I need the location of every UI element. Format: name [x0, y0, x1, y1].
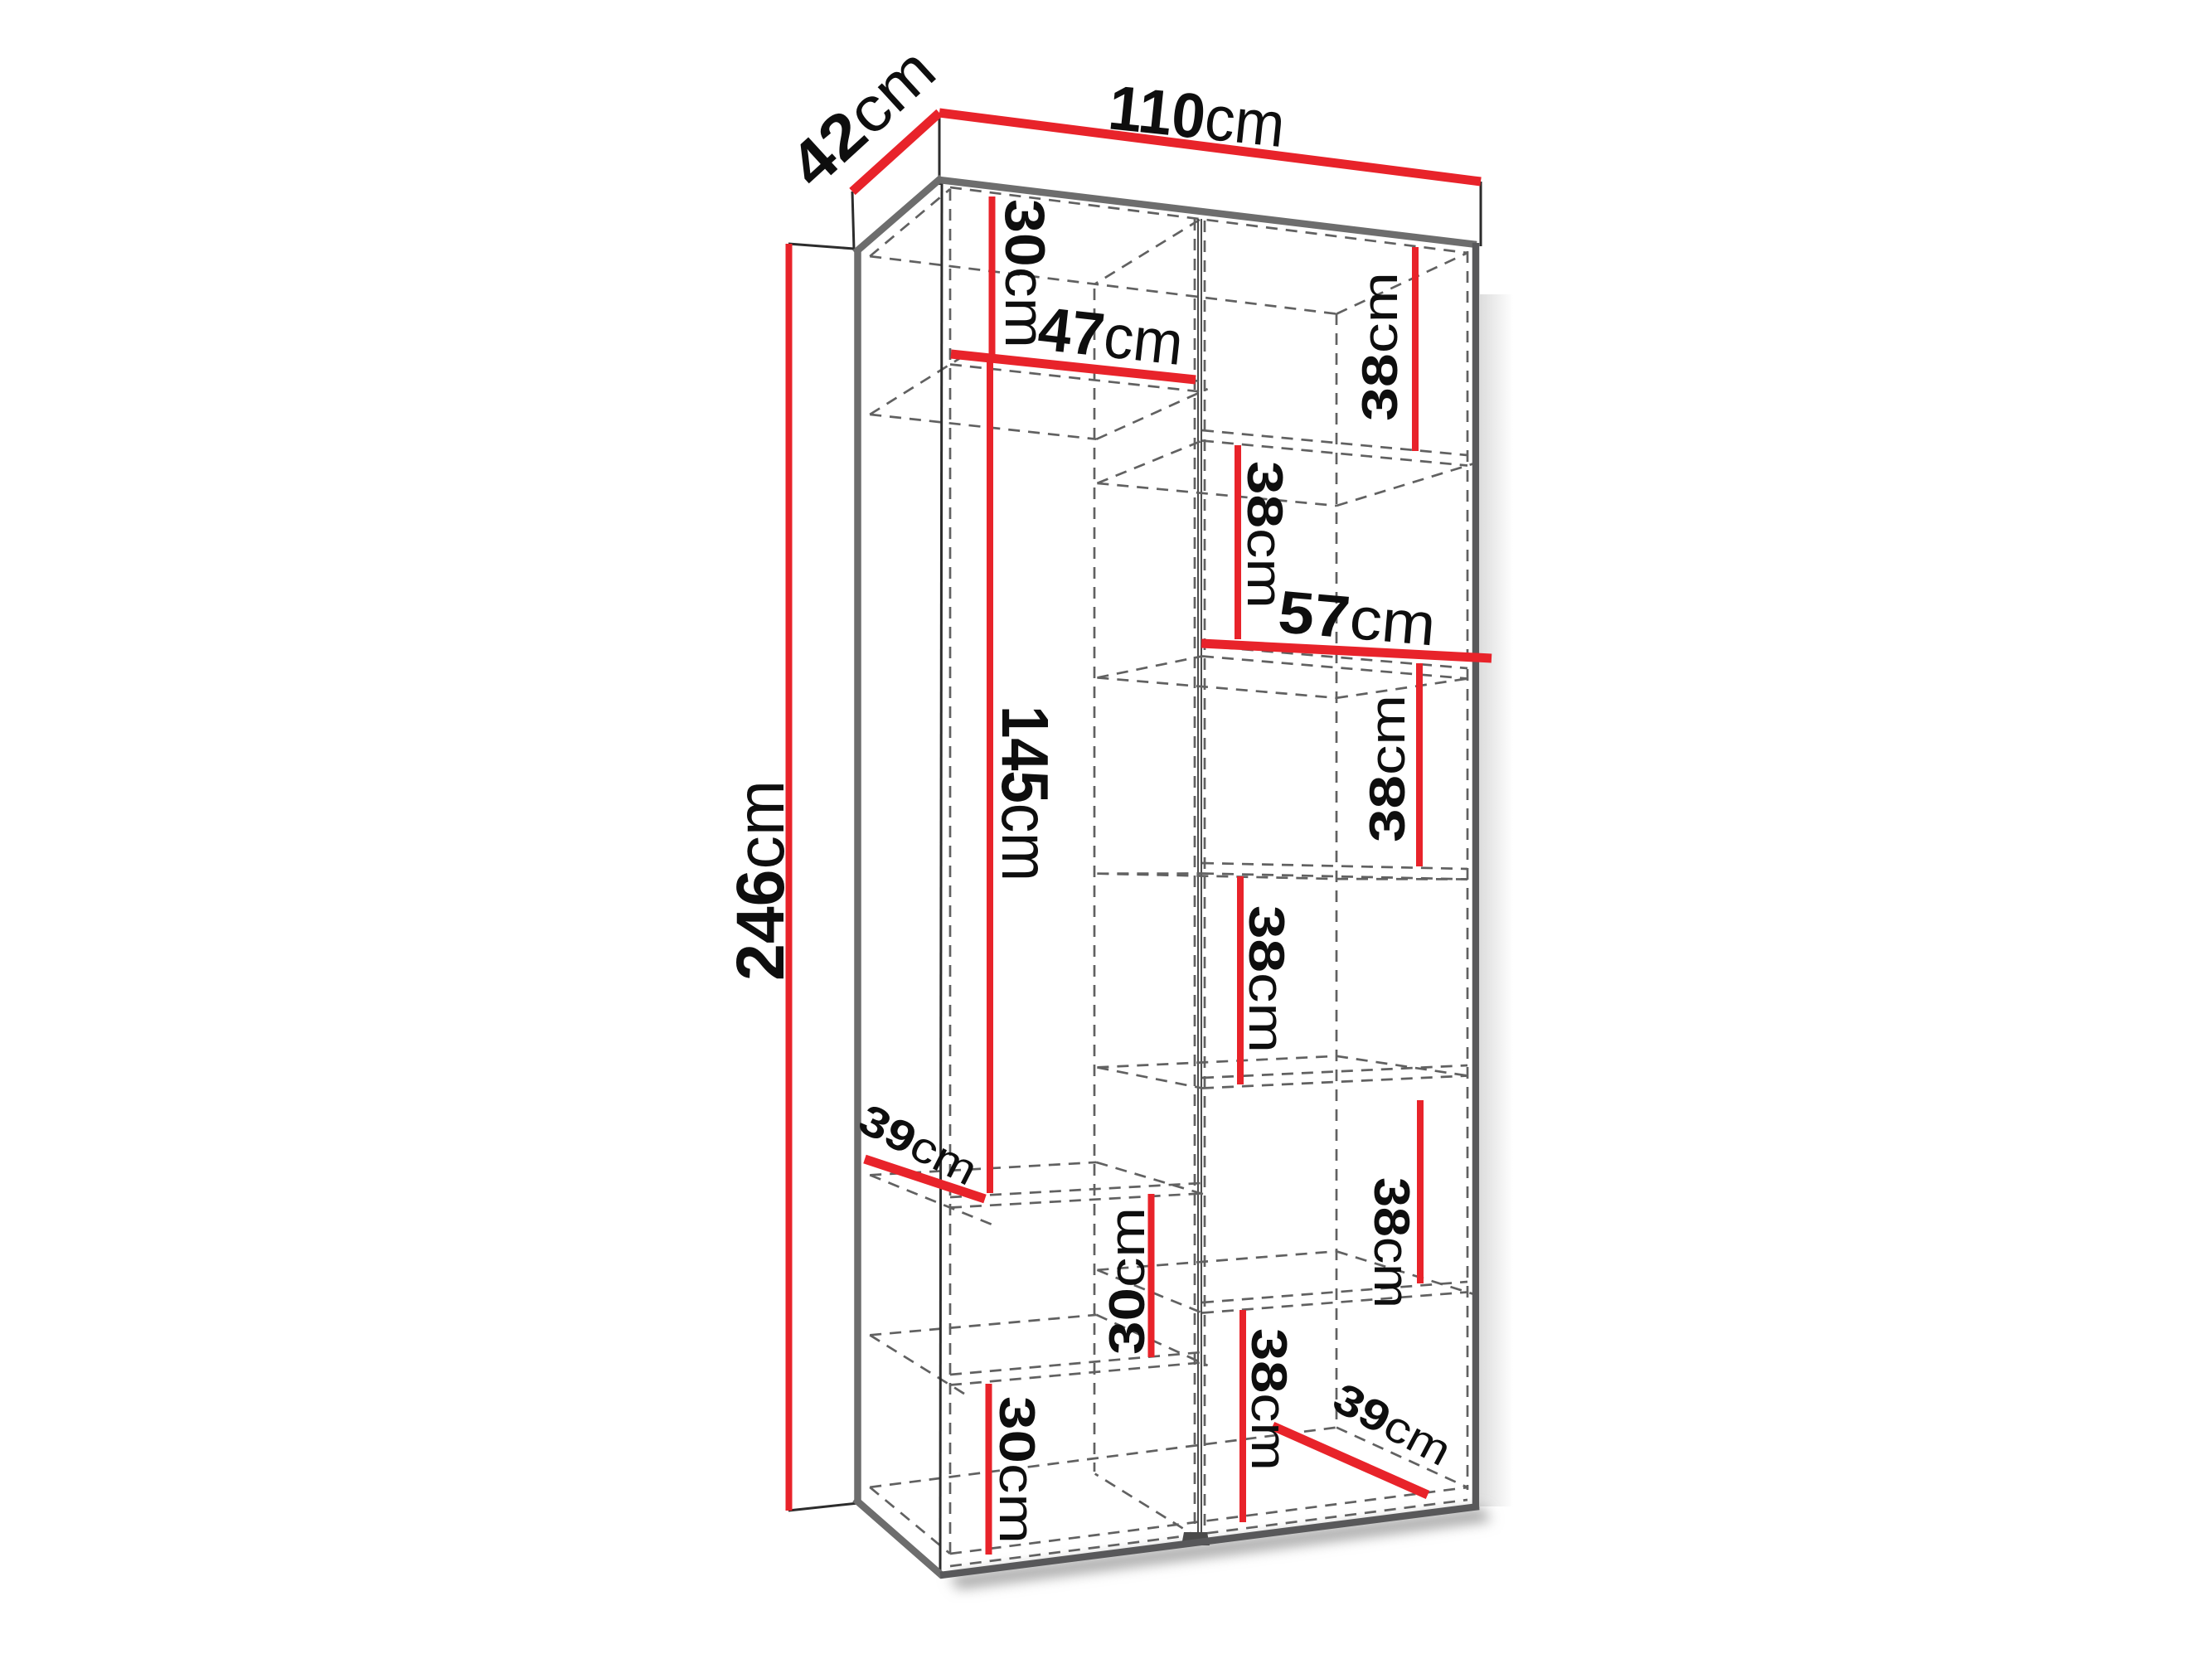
- svg-text:30cm: 30cm: [989, 1396, 1045, 1544]
- svg-text:38cm: 38cm: [1241, 1328, 1297, 1471]
- svg-text:57cm: 57cm: [1276, 579, 1438, 658]
- svg-text:38cm: 38cm: [1364, 1177, 1419, 1308]
- svg-text:246cm: 246cm: [723, 780, 798, 981]
- svg-text:38cm: 38cm: [1239, 905, 1294, 1053]
- svg-text:30cm: 30cm: [1099, 1207, 1155, 1355]
- svg-text:145cm: 145cm: [988, 706, 1062, 881]
- svg-text:38cm: 38cm: [1352, 272, 1408, 421]
- svg-text:38cm: 38cm: [1360, 695, 1415, 842]
